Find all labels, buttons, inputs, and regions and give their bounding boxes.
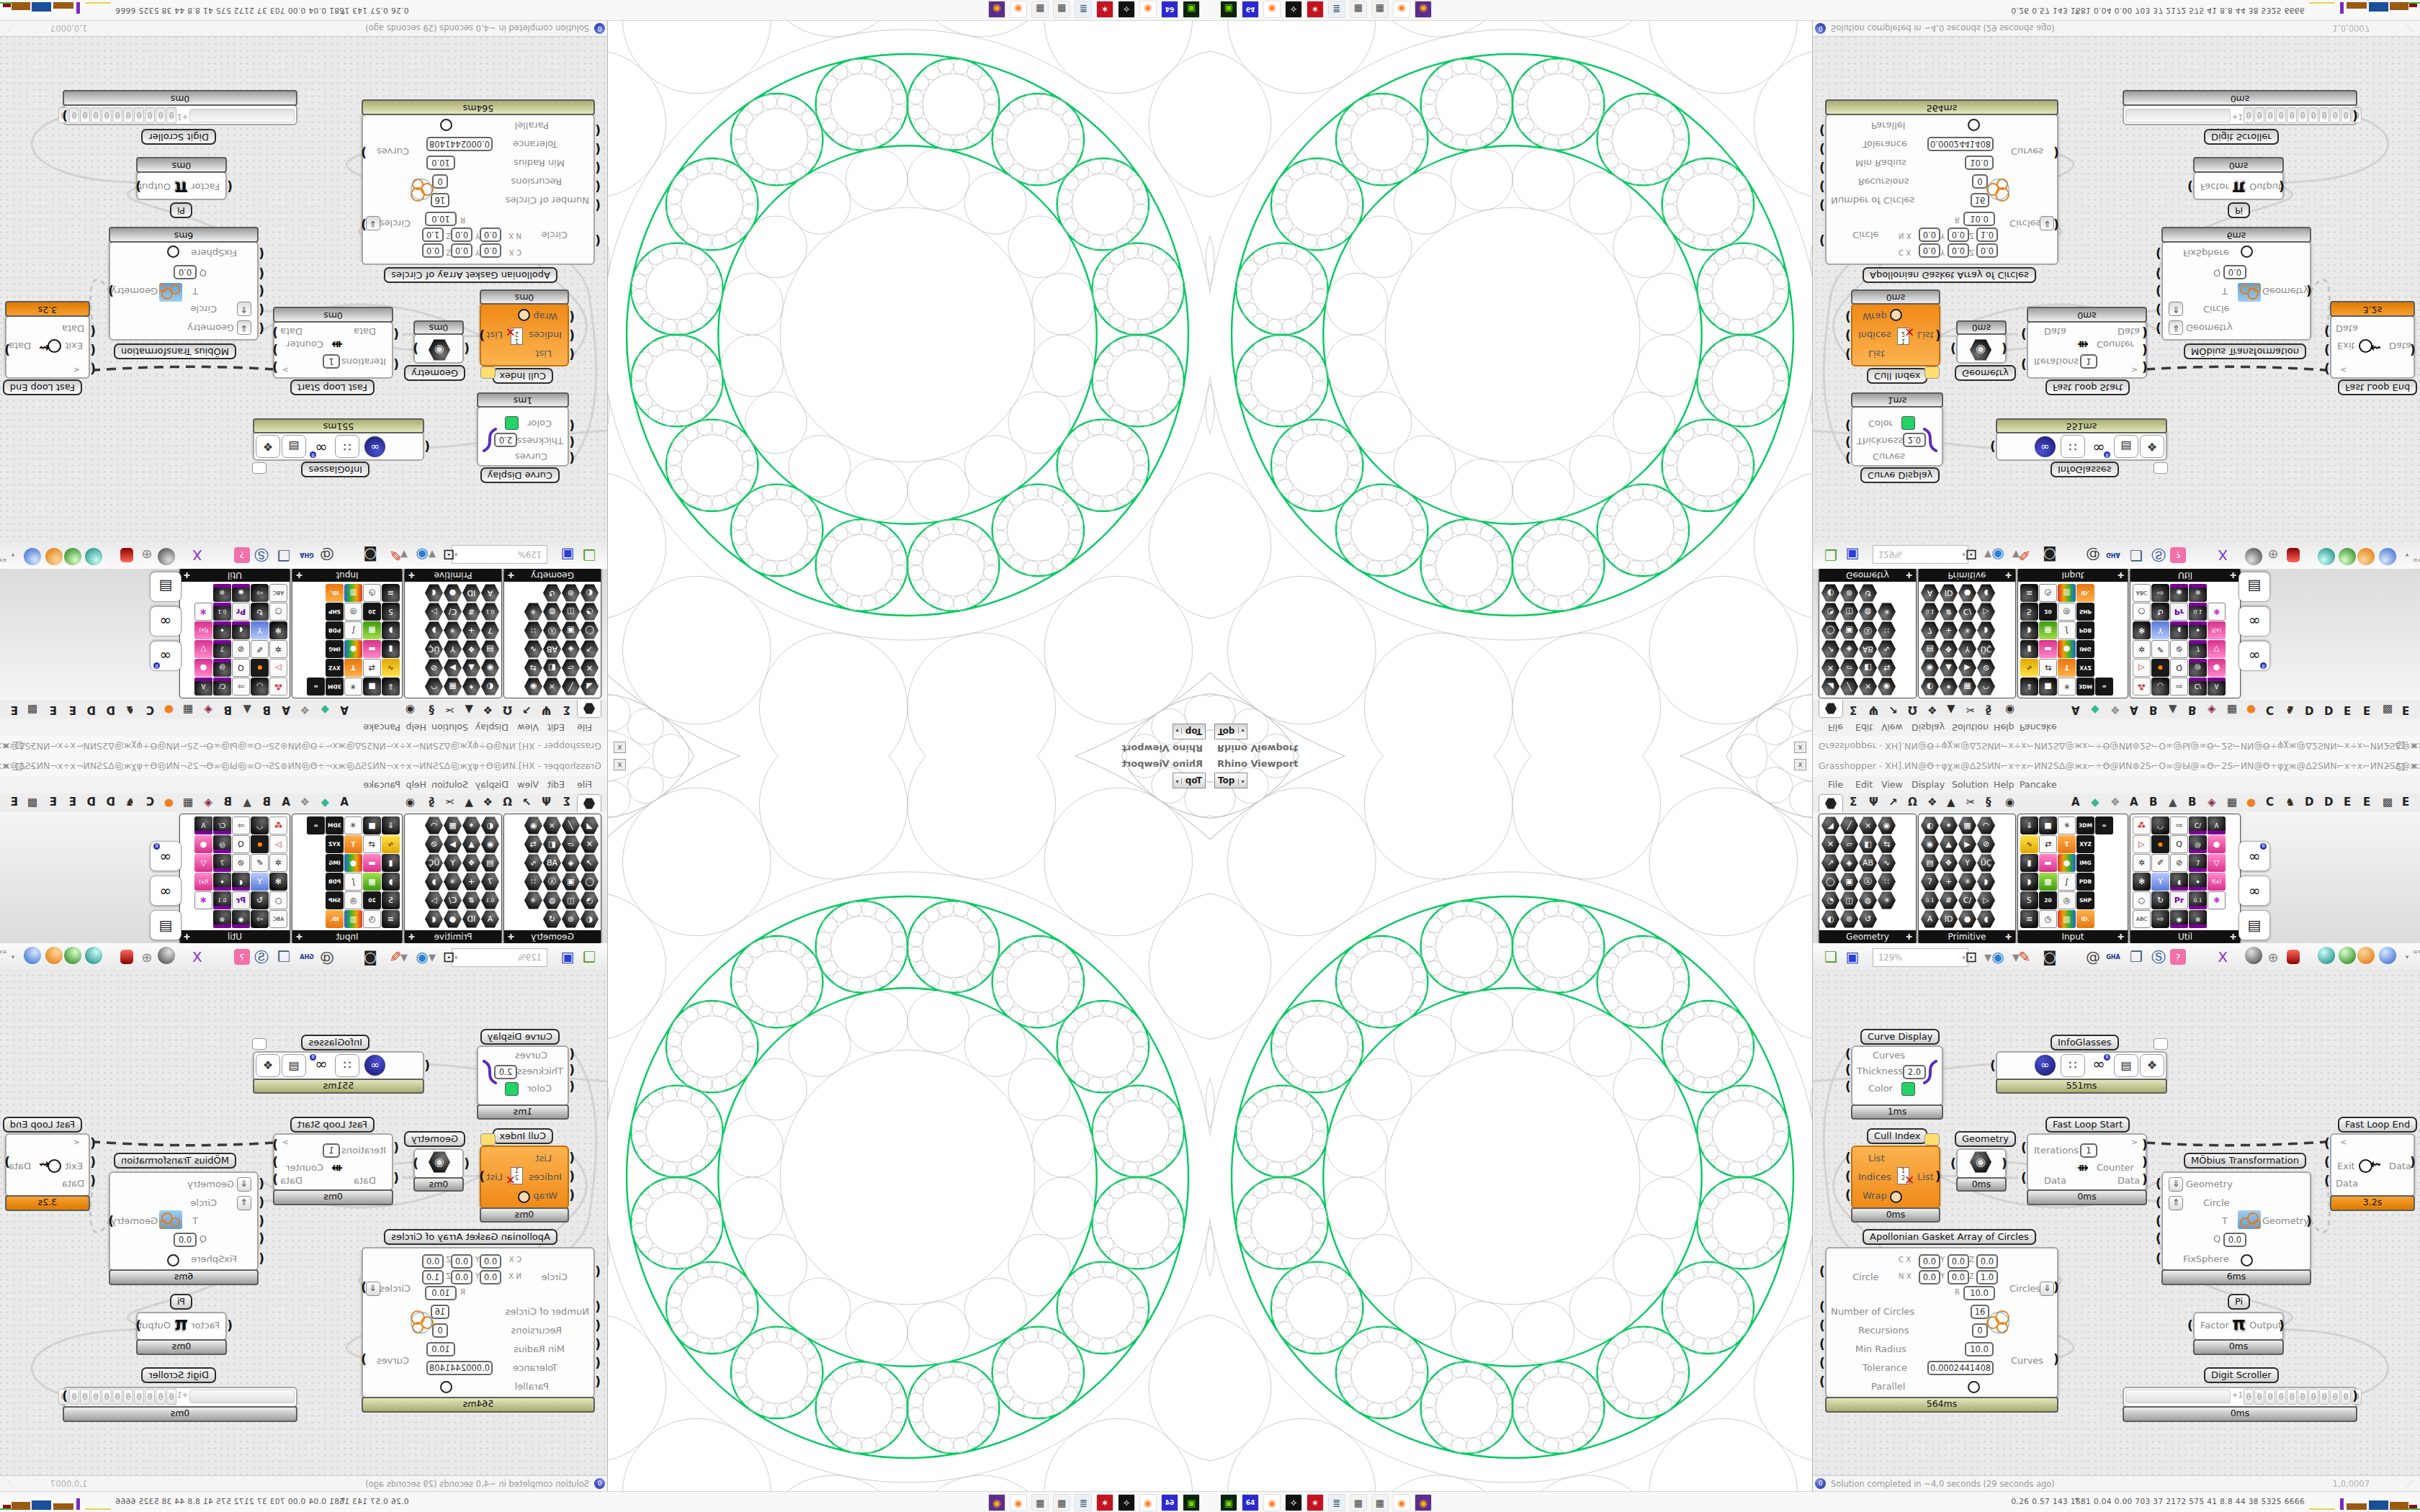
plugin-tab[interactable]: ◈ <box>204 796 212 809</box>
rhino[interactable]: ✧ <box>1285 1494 1302 1511</box>
plugin-tab[interactable]: ♞ <box>125 796 135 809</box>
palette-component-icon[interactable]: f(x) <box>2208 621 2226 639</box>
component-label[interactable]: Digit Scroller <box>2204 1367 2279 1383</box>
palette-component-icon[interactable]: ◗ <box>425 621 443 639</box>
menu-display[interactable]: Display <box>475 722 508 733</box>
viewport-close-icon[interactable]: x <box>614 742 626 753</box>
digit-cell[interactable]: 0 <box>2276 1389 2286 1405</box>
output-hook[interactable]: ) <box>62 109 68 123</box>
palette-component-icon[interactable]: Ⓐ <box>1859 873 1877 891</box>
wrap-toggle[interactable] <box>1890 1191 1902 1203</box>
close-button[interactable]: × <box>2408 761 2419 772</box>
fixsphere-toggle[interactable] <box>2241 1254 2253 1266</box>
category-tab-icon[interactable]: ▲ <box>465 796 473 809</box>
firefox-2[interactable]: ◉ <box>1010 1 1027 18</box>
component-label[interactable]: Geometry <box>404 1131 465 1147</box>
palette-component-icon[interactable]: ID. <box>2076 910 2094 928</box>
blue-ball-icon[interactable] <box>2379 947 2396 964</box>
save-file-icon[interactable]: ▣ <box>1842 947 1863 967</box>
archive-icon-button[interactable]: ▤ <box>2114 435 2138 458</box>
zoom-level-box[interactable]: 129%▾ <box>1873 948 1968 967</box>
plugin-tab[interactable]: E <box>2363 796 2370 809</box>
graft-icon[interactable]: ⇑ <box>2169 302 2183 316</box>
palette-component-icon[interactable]: ⇨ <box>232 816 250 834</box>
warning-balloon[interactable] <box>1924 366 1940 379</box>
palette-component-icon[interactable]: ◎ <box>2058 891 2076 909</box>
palette-component-icon[interactable]: ∫ <box>2058 621 2076 639</box>
palette-component-icon[interactable]: ❖ <box>1940 640 1958 658</box>
palette-component-icon[interactable]: ▣ <box>562 873 580 891</box>
menu-view[interactable]: View <box>1881 779 1903 790</box>
palette-component-icon[interactable]: @ <box>213 659 231 677</box>
palette-component-icon[interactable]: × <box>1859 678 1877 696</box>
dna-icon[interactable]: X <box>2213 947 2233 967</box>
min-radius-value[interactable]: 10.0 <box>1965 156 1994 170</box>
palette-component-icon[interactable]: ⊘ <box>232 640 250 658</box>
palette-component-icon[interactable]: ≡ <box>2020 584 2038 602</box>
palette-component-icon[interactable]: # <box>1940 603 1958 621</box>
palette-component-icon[interactable]: ▤ <box>1921 640 1939 658</box>
expand-icon[interactable]: ✚ <box>508 930 514 944</box>
input-hook[interactable]: ( <box>1819 1318 1825 1333</box>
search-s-icon[interactable]: Ⓢ <box>2148 947 2169 967</box>
app-red[interactable]: ✶ <box>1096 1 1113 18</box>
palette-component-icon[interactable]: 7 <box>481 621 499 639</box>
plugin-tab[interactable]: ▲ <box>243 703 251 716</box>
palette-component-icon[interactable]: ✐ <box>251 854 269 872</box>
category-tab-icon[interactable]: ❖ <box>483 703 493 716</box>
palette-component-icon[interactable]: ◖ <box>232 621 250 639</box>
output-hook[interactable]: ) <box>108 284 114 298</box>
palette-component-icon[interactable]: ↗ <box>1821 854 1839 872</box>
infoglasses-button[interactable]: ∞8 <box>2238 841 2270 871</box>
input-hook[interactable]: ( <box>2156 1251 2161 1266</box>
geometry-param-component[interactable]: ◉ <box>413 333 464 364</box>
palette-component-icon[interactable]: SHP <box>326 891 344 909</box>
digit-cell[interactable]: 0 <box>102 1389 112 1405</box>
plugin-tab[interactable]: E <box>11 796 18 809</box>
circle-cz[interactable]: 0.0 <box>1976 1254 1998 1269</box>
palette-component-icon[interactable]: Y <box>444 854 462 872</box>
component-label[interactable]: Geometry <box>404 365 465 381</box>
input-hook[interactable]: ( <box>569 1063 575 1077</box>
input-hook[interactable]: ( <box>227 179 233 194</box>
palette-component-icon[interactable]: ▽ <box>194 854 212 872</box>
palette-component-icon[interactable]: ABC <box>269 584 287 602</box>
palette-component-icon[interactable]: ABC <box>2133 584 2151 602</box>
palette-component-icon[interactable]: ∿ <box>524 854 542 872</box>
plugin-icon-button[interactable]: ❖ <box>2140 1054 2164 1077</box>
component-label[interactable]: Apollonian Gasket Array of Circles <box>384 267 557 283</box>
plugin-tab[interactable]: E <box>2402 703 2409 716</box>
plugin-tab[interactable]: ◈ <box>2208 796 2216 809</box>
parallel-toggle[interactable] <box>1968 1381 1980 1393</box>
palette-component-icon[interactable]: ◎ <box>344 891 362 909</box>
palette-component-icon[interactable]: ▦ <box>444 678 462 696</box>
digit-scroller-component[interactable]: +1 00000000000 <box>2123 1387 2357 1408</box>
wire-sphere-icon[interactable]: ⊕ <box>137 947 157 967</box>
scroller-track[interactable] <box>189 1390 295 1403</box>
palette-group-label[interactable]: Geometry <box>1846 570 1889 580</box>
fixsphere-toggle[interactable] <box>2241 246 2253 258</box>
infoglasses-component[interactable]: ∞ ∷ ∞8 ▤ ❖ <box>1996 431 2167 461</box>
palette-component-icon[interactable]: 7 <box>1921 873 1939 891</box>
palette-component-icon[interactable]: ◐ <box>481 678 499 696</box>
menu-solution[interactable]: Solution <box>431 779 468 790</box>
plugin-tab[interactable]: E <box>69 796 76 809</box>
palette-component-icon[interactable]: ▦ <box>2039 873 2057 891</box>
save-file-icon[interactable]: ▣ <box>1842 545 1863 565</box>
menu-file[interactable]: File <box>577 722 592 733</box>
palette-component-icon[interactable]: 3DM <box>326 678 344 696</box>
palette-component-icon[interactable]: 3DM <box>326 816 344 834</box>
palette-component-icon[interactable]: 20 <box>2039 891 2057 909</box>
palette-component-icon[interactable]: ✦ <box>2189 621 2207 639</box>
sketch-pen-icon[interactable]: ✎ <box>385 545 405 565</box>
palette-component-icon[interactable]: ◍ <box>543 891 561 909</box>
q-value[interactable]: 0.0 <box>174 1233 197 1247</box>
digit-scroller-component[interactable]: +1 00000000000 <box>63 1387 297 1408</box>
component-label[interactable]: Cull Index <box>493 1128 553 1144</box>
input-hook[interactable]: ( <box>90 361 96 376</box>
component-label[interactable]: Fast Loop End <box>3 1117 82 1133</box>
input-hook[interactable]: ( <box>595 161 601 175</box>
digit-cell[interactable]: 0 <box>145 1389 155 1405</box>
teal-ball-icon[interactable] <box>2318 548 2335 565</box>
palette-component-icon[interactable]: ◷ <box>2039 910 2057 928</box>
palette-component-icon[interactable]: ▷ <box>269 835 287 853</box>
notepad[interactable]: ≣ <box>1075 1494 1092 1511</box>
blue-ball-icon[interactable] <box>24 947 41 964</box>
tab-params-selected[interactable] <box>1819 699 1843 718</box>
curve-display-component[interactable]: Curves Thickness 2.0 Color <box>1851 1045 1943 1106</box>
palette-component-icon[interactable]: ↗ <box>581 854 599 872</box>
input-hook[interactable]: ( <box>464 1156 470 1171</box>
input-hook[interactable]: ( <box>227 1318 233 1333</box>
palette-component-icon[interactable]: ∿ <box>2020 659 2038 677</box>
flatten-icon[interactable]: ⇓ <box>2040 216 2054 230</box>
input-hook[interactable]: ( <box>1845 418 1851 433</box>
palette-component-icon[interactable]: ◉ <box>524 816 542 834</box>
palette-component-icon[interactable]: ● <box>344 640 362 658</box>
output-hook[interactable]: ) <box>108 1214 114 1228</box>
input-hook[interactable]: ( <box>2021 357 2027 372</box>
palette-component-icon[interactable]: ⇨ <box>2170 816 2188 834</box>
wire-sphere-icon[interactable]: ⊕ <box>137 545 157 565</box>
category-tab-icon[interactable]: Σ <box>1850 796 1857 809</box>
component-label[interactable]: MÖbius Transformation <box>2184 343 2306 359</box>
search-s-icon[interactable]: Ⓢ <box>251 545 272 565</box>
plugin-tab[interactable]: ● <box>164 796 174 809</box>
menu-file[interactable]: File <box>1828 779 1843 790</box>
input-hook[interactable]: ( <box>464 341 470 356</box>
digit-cell[interactable]: 0 <box>2244 1389 2254 1405</box>
fixsphere-toggle[interactable] <box>167 1254 179 1266</box>
output-hook[interactable]: ) <box>2002 341 2007 356</box>
plugin-tab[interactable]: E <box>50 703 57 716</box>
palette-component-icon[interactable]: Y <box>2151 621 2169 639</box>
component-label[interactable]: Curve Display <box>1860 467 1940 483</box>
palette-group-label[interactable]: Input <box>336 932 358 942</box>
menu-display[interactable]: Display <box>475 779 508 790</box>
digit-cell[interactable]: 0 <box>123 1389 133 1405</box>
menu-help[interactable]: Help <box>1994 722 2015 733</box>
teal-ball-icon[interactable] <box>85 548 102 565</box>
firefox[interactable]: ◉ <box>1139 1494 1157 1511</box>
plugin-tab[interactable]: ◆ <box>2091 703 2099 716</box>
palette-component-icon[interactable]: ⊘ <box>425 659 443 677</box>
output-hook[interactable]: ) <box>4 343 10 357</box>
output-hook[interactable]: ) <box>479 1169 485 1184</box>
category-tab-icon[interactable]: Ω <box>1908 703 1917 716</box>
palette-component-icon[interactable]: ◔ <box>581 603 599 621</box>
palette-component-icon[interactable]: 20 <box>363 891 381 909</box>
firefox-2[interactable]: ◉ <box>1393 1494 1410 1511</box>
input-hook[interactable]: ( <box>2324 361 2330 376</box>
firefox-2[interactable]: ◉ <box>1393 1 1410 18</box>
palette-component-icon[interactable]: ⊘ <box>2170 640 2188 658</box>
palette-component-icon[interactable]: ✦ <box>2189 873 2207 891</box>
input-hook[interactable]: ( <box>90 1174 96 1188</box>
component-label[interactable]: Fast Loop End <box>2338 379 2417 395</box>
flatten-icon[interactable]: ⇓ <box>2169 1177 2183 1192</box>
apollonian-component[interactable]: C X 0.0 Y 0.0 Z 0.0 Circle N X 0.0 Y 0.0… <box>362 114 595 265</box>
palette-component-icon[interactable]: f(x) <box>194 621 212 639</box>
output-hook[interactable]: ) <box>413 341 418 356</box>
plugin-tab[interactable]: D <box>87 703 96 716</box>
palette-component-icon[interactable]: ∷ <box>524 621 542 639</box>
output-hook[interactable]: ) <box>2142 1155 2148 1169</box>
warning-balloon[interactable] <box>1924 1133 1940 1146</box>
recursions-value[interactable]: 0 <box>1972 174 1988 189</box>
plugin-tab[interactable]: C <box>2266 703 2274 716</box>
digit-cell[interactable]: 0 <box>2276 107 2286 123</box>
output-hook[interactable]: ) <box>272 360 278 374</box>
rhino-viewport[interactable]: Rhino Viewport x Top▾ <box>1210 756 1813 1492</box>
digit-cell[interactable]: 0 <box>102 107 112 123</box>
cull-index-component[interactable]: List Indices Wrap 12 ✕ List <box>1851 303 1940 366</box>
palette-component-icon[interactable]: ▲ <box>462 659 480 677</box>
palette-component-icon[interactable]: ◷ <box>363 584 381 602</box>
palette-component-icon[interactable]: AB <box>1859 854 1877 872</box>
category-tab-icon[interactable]: Ψ <box>542 796 551 809</box>
preview-sphere-icon[interactable] <box>2245 947 2262 964</box>
palette-component-icon[interactable]: ◯ <box>1821 873 1839 891</box>
plugin-tab[interactable]: ▲ <box>2169 703 2177 716</box>
palette-component-icon[interactable]: ⁂ <box>2133 678 2151 696</box>
plugin-tab[interactable]: B <box>224 703 232 716</box>
palette-component-icon[interactable]: ∿ <box>382 835 400 853</box>
category-tab-icon[interactable]: ◉ <box>2005 703 2015 716</box>
palette-component-icon[interactable]: ▱ <box>562 659 580 677</box>
input-hook[interactable]: ( <box>2156 246 2161 261</box>
input-hook[interactable]: ( <box>259 321 264 336</box>
preview-eye-icon[interactable]: ◉ <box>1988 947 2008 967</box>
palette-component-icon[interactable]: ∷ <box>1878 873 1896 891</box>
palette-component-icon[interactable]: ● <box>444 910 462 928</box>
menu-edit[interactable]: Edit <box>1855 722 1873 733</box>
palette-component-icon[interactable]: ✳ <box>2058 678 2076 696</box>
maximize-button[interactable]: □ <box>14 761 24 772</box>
parallel-toggle[interactable] <box>440 119 452 131</box>
plugin-tab[interactable]: E <box>11 703 18 716</box>
menu-file[interactable]: File <box>1828 722 1843 733</box>
menu-help[interactable]: Help <box>406 779 427 790</box>
open-file-icon[interactable]: ❏ <box>1821 947 1841 967</box>
plugin-tab[interactable]: E <box>50 796 57 809</box>
rhino[interactable]: ✧ <box>1118 1 1135 18</box>
palette-component-icon[interactable]: Y <box>2151 873 2169 891</box>
output-hook[interactable]: ) <box>2142 343 2148 357</box>
view-selector[interactable]: Top▾ <box>1173 773 1206 788</box>
digit-cell[interactable]: 0 <box>166 107 176 123</box>
component-label[interactable]: Geometry <box>1955 1131 2016 1147</box>
pi-component[interactable]: Factor π Output <box>2193 171 2284 200</box>
input-hook[interactable]: ( <box>2156 302 2161 317</box>
plugin-tab[interactable]: B <box>2149 796 2157 809</box>
app-64[interactable]: 64 <box>1161 1494 1178 1511</box>
palette-component-icon[interactable]: ◢ <box>581 678 599 696</box>
menu-solution[interactable]: Solution <box>1952 779 1989 790</box>
wrap-toggle[interactable] <box>1890 309 1902 321</box>
palette-component-icon[interactable]: ◖ <box>425 910 443 928</box>
palette-component-icon[interactable]: ◧ <box>1859 835 1877 853</box>
input-hook[interactable]: ( <box>259 1214 264 1228</box>
plugin-icon-button[interactable]: ❖ <box>256 1054 280 1077</box>
digit-cell[interactable]: 0 <box>156 107 166 123</box>
palette-component-icon[interactable]: A <box>194 816 212 834</box>
preview-eye-icon[interactable]: ◉ <box>412 545 432 565</box>
window-note-icon[interactable]: ❐ <box>2126 545 2146 565</box>
palette-component-icon[interactable]: ● <box>344 854 362 872</box>
palette-component-icon[interactable]: ◠ <box>1977 816 1995 834</box>
palette-component-icon[interactable]: PDB <box>326 873 344 891</box>
circle-cz[interactable]: 0.0 <box>1976 243 1998 258</box>
palette-component-icon[interactable]: ◐ <box>481 816 499 834</box>
close-button[interactable]: × <box>1 761 12 772</box>
palette-component-icon[interactable]: ╱ <box>562 816 580 834</box>
view-selector[interactable]: Top▾ <box>1214 724 1247 739</box>
palette-component-icon[interactable]: ⇨ <box>2170 678 2188 696</box>
output-hook[interactable]: ) <box>2352 109 2358 123</box>
palette-component-icon[interactable]: ◖ <box>2170 621 2188 639</box>
input-hook[interactable]: ( <box>569 451 575 465</box>
menu-solution[interactable]: Solution <box>1952 722 1989 733</box>
palette-component-icon[interactable]: ↗ <box>1821 640 1839 658</box>
palette-component-icon[interactable]: ⇆ <box>1878 659 1896 677</box>
palette-component-icon[interactable]: ○ <box>2133 891 2151 909</box>
screen-button[interactable]: ▤ <box>150 572 181 602</box>
palette-component-icon[interactable]: Pr <box>232 603 250 621</box>
palette-component-icon[interactable]: ⊘ <box>1977 835 1995 853</box>
palette-component-icon[interactable]: ◫ <box>562 891 580 909</box>
component-label[interactable]: Pi <box>2228 202 2250 218</box>
palette-component-icon[interactable]: ◗ <box>2020 621 2038 639</box>
circle-cz[interactable]: 0.0 <box>422 1254 444 1269</box>
palette-component-icon[interactable]: × <box>1859 816 1877 834</box>
palette-component-icon[interactable]: 5 <box>2020 603 2038 621</box>
palette-component-icon[interactable]: ✱ <box>2208 603 2226 621</box>
viewport-close-icon[interactable]: x <box>1794 742 1806 753</box>
palette-component-icon[interactable]: ◗ <box>1977 621 1995 639</box>
output-hook[interactable]: ) <box>2142 325 2148 340</box>
maze-app-1[interactable]: ▦ <box>1350 1494 1367 1511</box>
palette-component-icon[interactable]: C/ <box>1958 891 1976 909</box>
infoglasses-solve-icon[interactable]: ∞ <box>2035 436 2056 457</box>
open-file-icon[interactable]: ❏ <box>579 545 599 565</box>
palette-component-icon[interactable]: ✶ <box>462 816 480 834</box>
archive-icon-button[interactable]: ▤ <box>2114 1054 2138 1077</box>
palette-component-icon[interactable]: ◯ <box>1821 621 1839 639</box>
palette-component-icon[interactable]: Ⓐ <box>1859 621 1877 639</box>
scroller-track[interactable] <box>2125 109 2231 122</box>
digit-cell[interactable]: 0 <box>80 107 90 123</box>
rhino-viewport[interactable]: Rhino Viewport x Top▾ <box>607 20 1210 756</box>
goggles-icon-button[interactable]: ∞8 <box>2087 436 2111 458</box>
category-tab-icon[interactable]: ✂ <box>444 796 454 809</box>
palette-component-icon[interactable]: ◔ <box>581 891 599 909</box>
tolerance-value[interactable]: 0.0002441408 <box>1927 1361 1994 1375</box>
input-hook[interactable]: ( <box>2324 1174 2330 1188</box>
palette-component-icon[interactable]: ◢ <box>581 816 599 834</box>
input-hook[interactable]: ( <box>569 1047 575 1061</box>
palette-component-icon[interactable]: ◡ <box>251 816 269 834</box>
palette-component-icon[interactable]: ⊗ <box>213 910 231 928</box>
palette-component-icon[interactable]: SHP <box>326 603 344 621</box>
palette-component-icon[interactable]: Ⓐ <box>543 873 561 891</box>
expand-icon[interactable]: ✚ <box>408 930 415 944</box>
category-tab-icon[interactable]: ◉ <box>405 796 415 809</box>
palette-component-icon[interactable]: A <box>2208 816 2226 834</box>
palette-component-icon[interactable]: ⊗ <box>213 584 231 602</box>
palette-component-icon[interactable]: ∿ <box>1878 854 1896 872</box>
plugin-tab[interactable]: ▦ <box>183 703 193 716</box>
palette-component-icon[interactable]: ◠ <box>1977 678 1995 696</box>
palette-component-icon[interactable]: ◍ <box>1859 603 1877 621</box>
circle-cz[interactable]: 0.0 <box>422 243 444 258</box>
palette-component-icon[interactable]: Y <box>251 621 269 639</box>
maximize-button[interactable]: □ <box>14 740 24 751</box>
palette-component-icon[interactable]: 0.1 <box>2189 603 2207 621</box>
expand-icon[interactable]: ✚ <box>408 568 415 582</box>
palette-component-icon[interactable]: ◎ <box>344 603 362 621</box>
red-cylinder-icon[interactable] <box>117 947 137 967</box>
preview-eye-icon[interactable]: ◉ <box>412 947 432 967</box>
component-label[interactable]: Curve Display <box>480 467 560 483</box>
app-emulator[interactable]: ▣ <box>1183 1494 1200 1511</box>
output-hook[interactable]: ) <box>2142 1172 2148 1187</box>
input-hook[interactable]: ( <box>1819 161 1825 175</box>
firefox-2[interactable]: ◉ <box>1010 1494 1027 1511</box>
digit-cell[interactable]: 0 <box>2265 1389 2275 1405</box>
palette-component-icon[interactable]: ◫ <box>1840 891 1858 909</box>
palette-component-icon[interactable]: ▮ <box>382 854 400 872</box>
input-hook[interactable]: ( <box>2156 266 2161 281</box>
palette-component-icon[interactable]: f(x) <box>2208 873 2226 891</box>
palette-component-icon[interactable]: ● <box>251 835 269 853</box>
category-tab-icon[interactable]: ↗ <box>1888 796 1898 809</box>
plugin-tab[interactable]: ▩ <box>2383 703 2393 716</box>
palette-component-icon[interactable]: ▷ <box>2133 659 2151 677</box>
view-selector[interactable]: Top▾ <box>1214 773 1247 788</box>
palette-component-icon[interactable]: ⇨ <box>2151 910 2169 928</box>
palette-group-label[interactable]: Input <box>2061 570 2084 580</box>
palette-component-icon[interactable]: Ⓐ <box>543 621 561 639</box>
palette-component-icon[interactable]: ◐ <box>1821 584 1839 602</box>
expand-icon[interactable]: ✚ <box>2117 930 2124 944</box>
palette-component-icon[interactable]: ✐ <box>2151 854 2169 872</box>
input-hook[interactable]: ( <box>569 1079 575 1094</box>
